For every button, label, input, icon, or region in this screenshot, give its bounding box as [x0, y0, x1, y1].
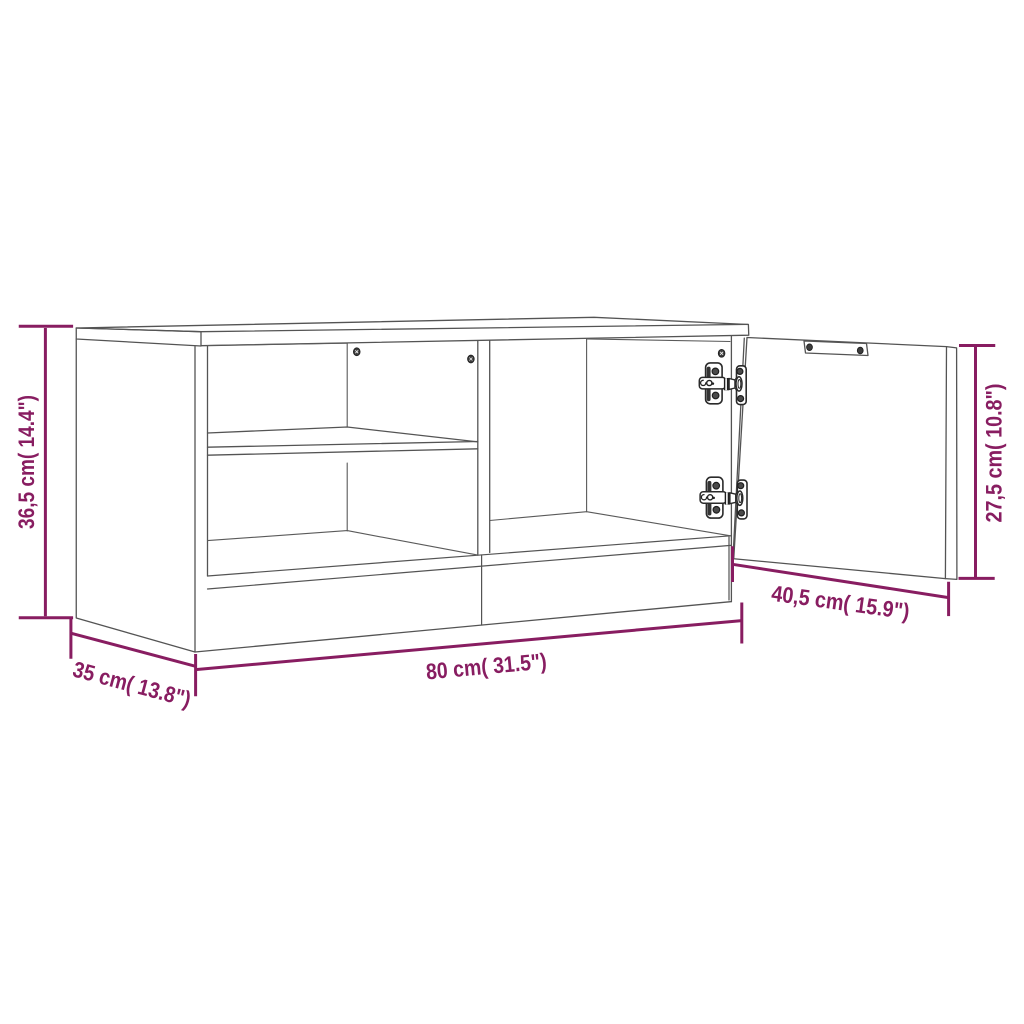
svg-text:27,5 cm( 10.8"): 27,5 cm( 10.8") [982, 384, 1007, 523]
svg-text:36,5 cm( 14.4"): 36,5 cm( 14.4") [14, 395, 39, 529]
